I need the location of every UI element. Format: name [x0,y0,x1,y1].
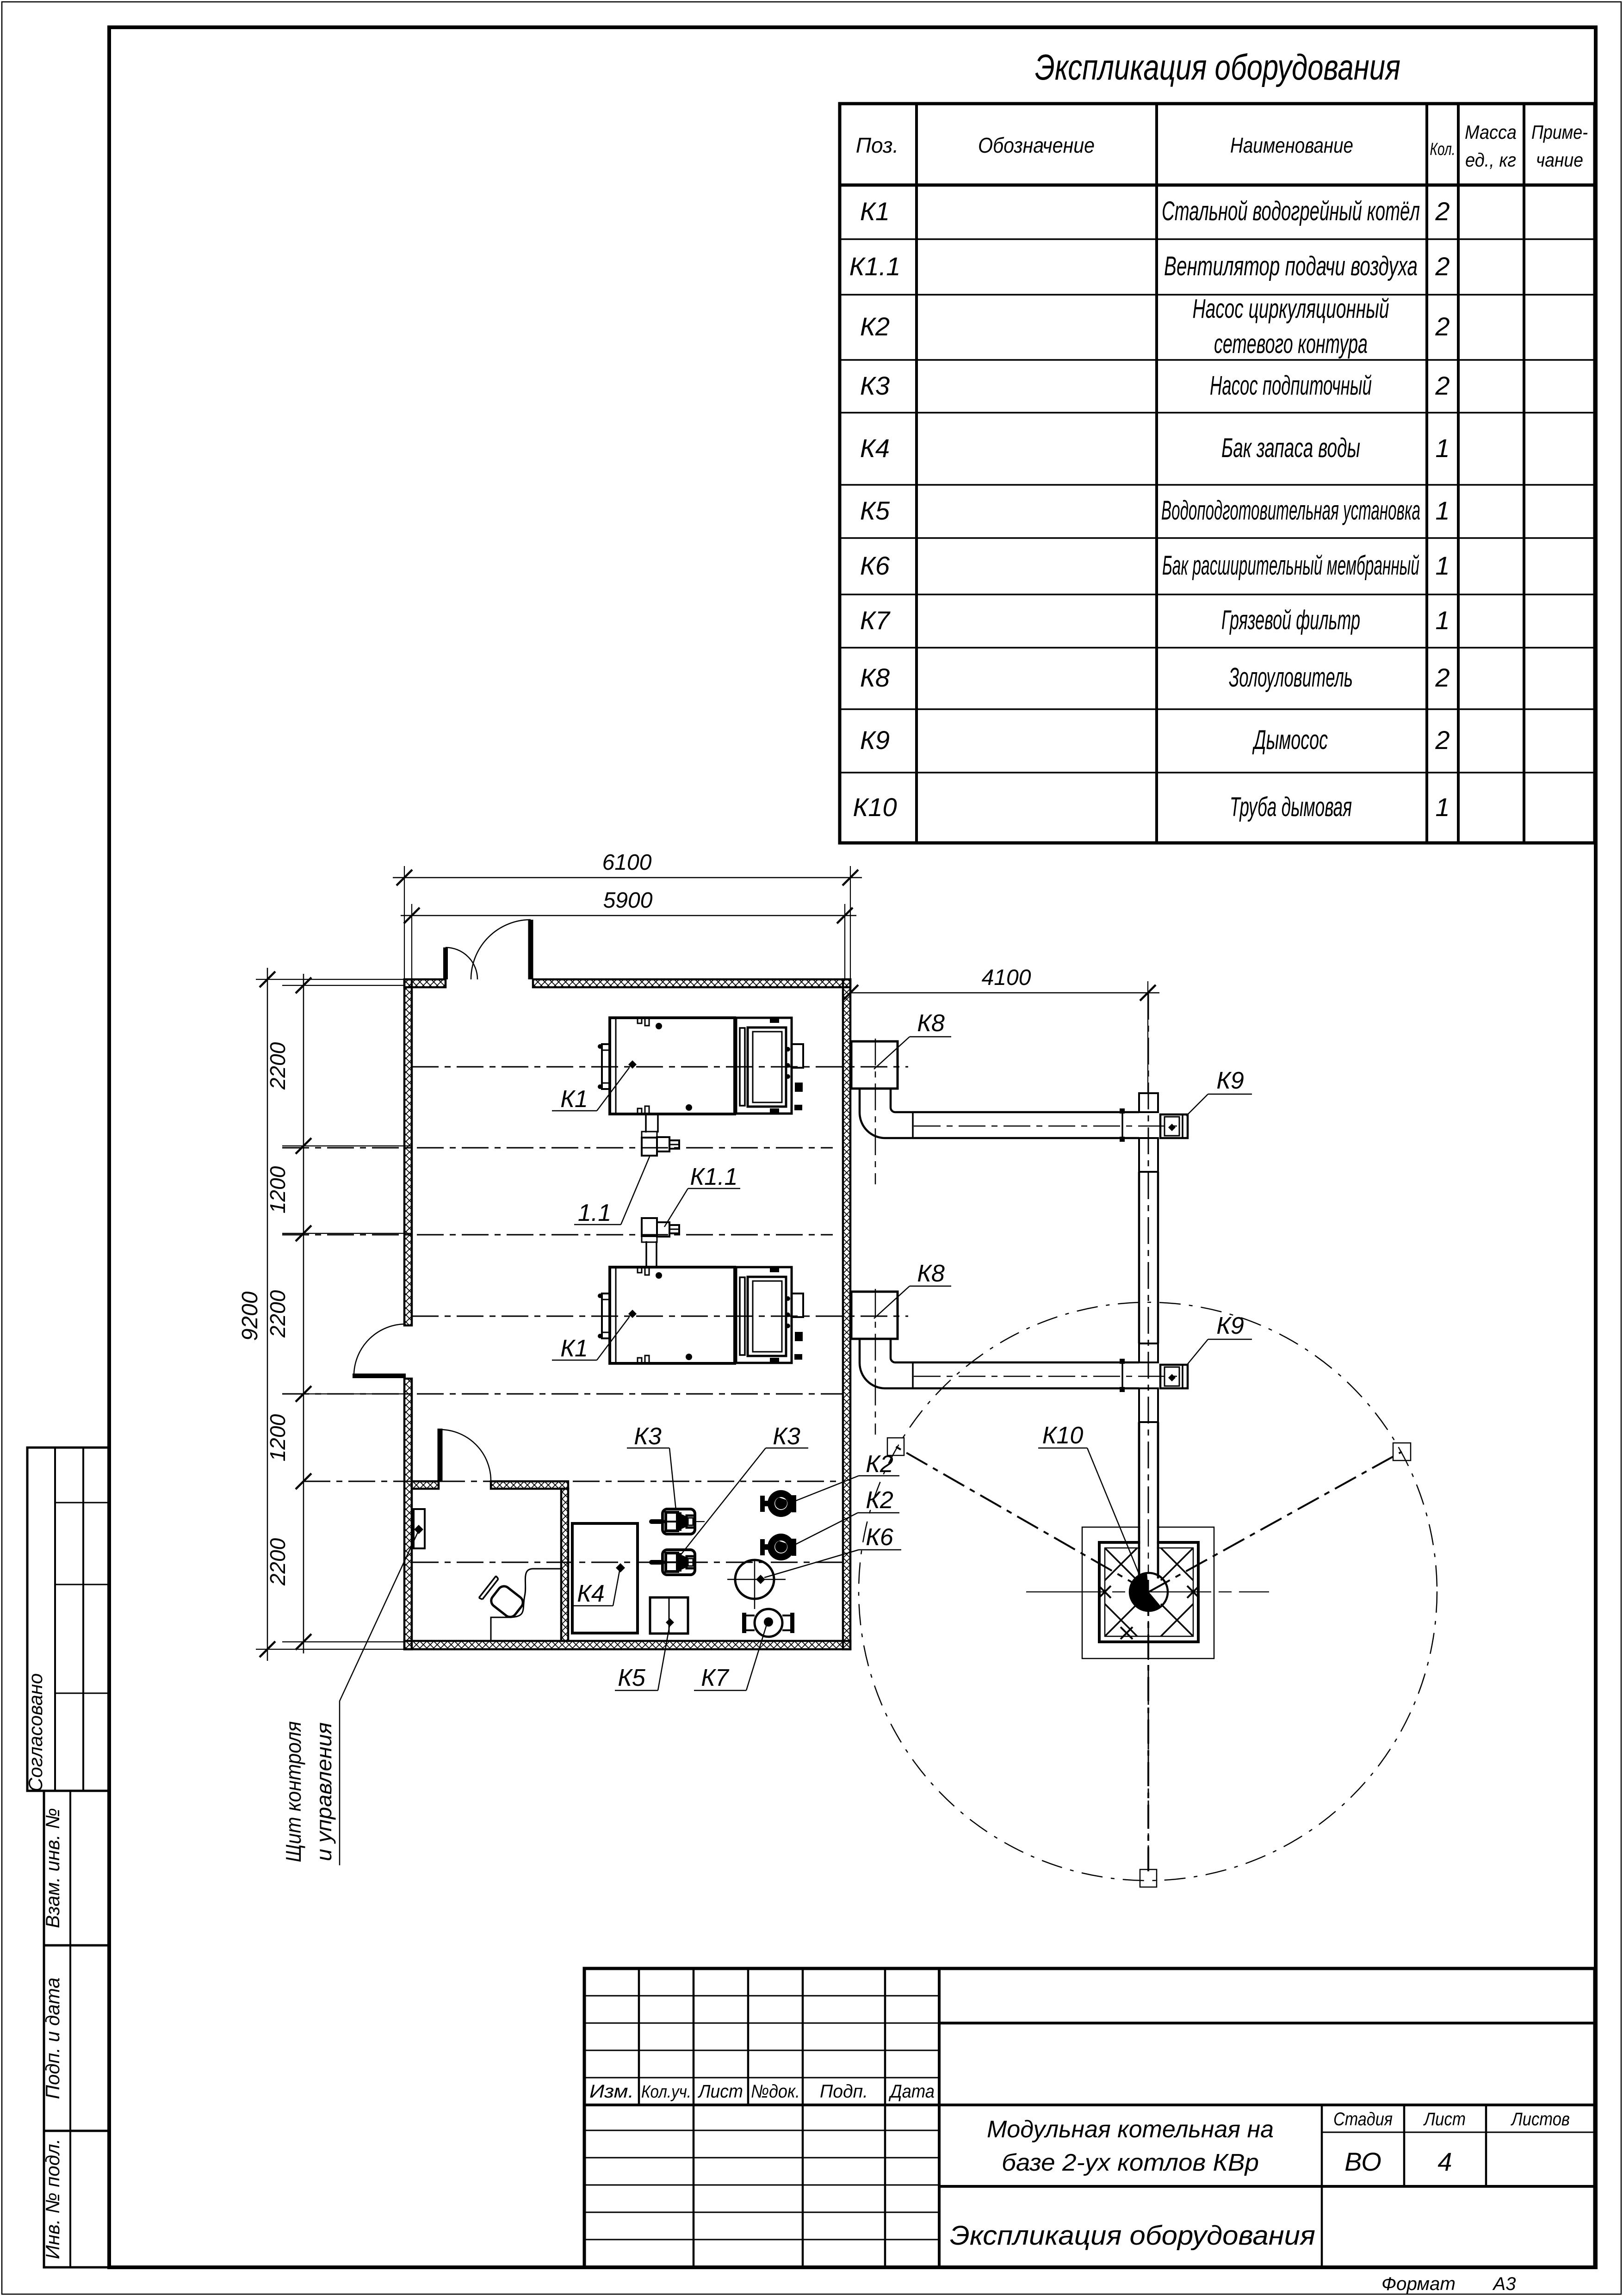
svg-text:Щит контроля: Щит контроля [281,1721,305,1863]
svg-text:Подп. и дата: Подп. и дата [42,1978,63,2099]
svg-text:2: 2 [1435,252,1450,281]
svg-text:2200: 2200 [266,1538,290,1586]
svg-text:Стадия: Стадия [1333,2109,1393,2129]
svg-text:Листов: Листов [1510,2109,1570,2129]
svg-text:Экспликация оборудования: Экспликация оборудования [1035,47,1400,87]
svg-text:Водоподготовительная установка: Водоподготовительная установка [1161,495,1420,526]
svg-text:К8: К8 [917,1260,945,1287]
svg-text:К7: К7 [701,1665,730,1691]
svg-text:Согласовано: Согласовано [25,1673,46,1792]
svg-text:Подп.: Подп. [820,2081,868,2102]
svg-text:К1: К1 [860,197,890,226]
svg-text:Лист: Лист [1423,2109,1466,2129]
svg-text:К7: К7 [860,606,891,635]
svg-text:Насос подпиточный: Насос подпиточный [1210,371,1372,401]
svg-text:2: 2 [1435,725,1450,755]
svg-text:А3: А3 [1493,2274,1516,2294]
svg-text:К2: К2 [860,312,890,341]
svg-text:базе 2-ух котлов КВр: базе 2-ух котлов КВр [1002,2149,1259,2176]
svg-text:К10: К10 [853,792,897,822]
svg-text:К3: К3 [773,1423,800,1450]
svg-text:1: 1 [1435,496,1450,525]
svg-text:чание: чание [1536,149,1583,171]
svg-text:Взам. инв. №: Взам. инв. № [42,1808,63,1928]
svg-text:1: 1 [1435,551,1450,580]
svg-text:К3: К3 [634,1423,662,1450]
svg-text:2200: 2200 [266,1042,290,1090]
svg-text:2: 2 [1435,312,1450,341]
svg-text:1200: 1200 [266,1166,290,1213]
svg-text:Наименование: Наименование [1230,133,1353,157]
svg-text:Золоуловитель: Золоуловитель [1229,662,1353,693]
svg-text:Дымосос: Дымосос [1252,725,1328,755]
svg-text:1: 1 [1435,433,1450,463]
svg-text:К9: К9 [860,725,890,755]
svg-text:Экспликация оборудования: Экспликация оборудования [950,2221,1315,2251]
svg-text:К5: К5 [860,496,890,525]
svg-text:К2: К2 [866,1451,893,1478]
svg-text:К6: К6 [866,1524,893,1551]
svg-text:Модульная котельная на: Модульная котельная на [987,2116,1274,2143]
svg-text:№док.: №док. [751,2081,800,2102]
svg-text:1: 1 [1435,606,1450,635]
svg-text:К5: К5 [618,1665,646,1691]
svg-text:1.1: 1.1 [578,1200,611,1226]
svg-text:Лист: Лист [697,2081,743,2102]
svg-text:Кол.: Кол. [1430,140,1456,159]
svg-text:и управления: и управления [312,1722,336,1861]
svg-text:Дата: Дата [888,2081,935,2102]
svg-text:ВО: ВО [1344,2147,1381,2176]
svg-text:9200: 9200 [238,1291,262,1341]
svg-text:Инв. № подл.: Инв. № подл. [42,2139,63,2259]
svg-text:Масса: Масса [1465,121,1517,143]
svg-text:4: 4 [1437,2147,1452,2176]
svg-text:Поз.: Поз. [856,133,899,157]
svg-text:Формат: Формат [1381,2274,1456,2294]
svg-text:К3: К3 [860,371,890,400]
svg-text:Стальной водогрейный котёл: Стальной водогрейный котёл [1162,196,1420,226]
svg-text:К1.1: К1.1 [690,1163,738,1190]
svg-text:Труба дымовая: Труба дымовая [1230,792,1352,822]
svg-text:Приме-: Приме- [1531,121,1588,143]
svg-text:К4: К4 [577,1580,605,1607]
svg-text:Вентилятор подачи воздуха: Вентилятор подачи воздуха [1164,251,1418,281]
svg-text:Бак расширительный мембранный: Бак расширительный мембранный [1162,551,1419,581]
svg-text:2200: 2200 [266,1290,290,1338]
svg-text:К6: К6 [860,551,890,580]
svg-text:К1: К1 [560,1335,588,1362]
svg-text:Грязевой фильтр: Грязевой фильтр [1221,605,1360,635]
svg-text:К9: К9 [1216,1312,1244,1339]
svg-text:2: 2 [1435,371,1450,400]
svg-text:6100: 6100 [602,850,652,875]
svg-text:2: 2 [1435,663,1450,692]
svg-text:К10: К10 [1042,1422,1084,1449]
svg-text:К2: К2 [866,1487,893,1514]
svg-text:Кол.уч.: Кол.уч. [641,2082,691,2102]
svg-text:4100: 4100 [982,965,1031,990]
svg-text:1: 1 [1435,792,1450,822]
svg-text:К1: К1 [560,1086,588,1113]
svg-text:К9: К9 [1216,1067,1244,1094]
svg-text:К4: К4 [860,433,890,463]
svg-text:Обозначение: Обозначение [978,133,1095,157]
svg-text:ед., кг: ед., кг [1465,149,1516,171]
svg-text:5900: 5900 [603,888,653,913]
svg-text:сетевого контура: сетевого контура [1214,329,1368,359]
svg-text:Насос циркуляционный: Насос циркуляционный [1193,294,1389,324]
svg-text:К8: К8 [860,663,890,692]
svg-text:К8: К8 [917,1010,945,1037]
svg-text:2: 2 [1435,197,1450,226]
svg-text:Изм.: Изм. [589,2081,634,2102]
svg-text:1200: 1200 [266,1414,290,1461]
svg-text:Бак запаса воды: Бак запаса воды [1221,433,1360,463]
svg-text:К1.1: К1.1 [849,252,901,281]
